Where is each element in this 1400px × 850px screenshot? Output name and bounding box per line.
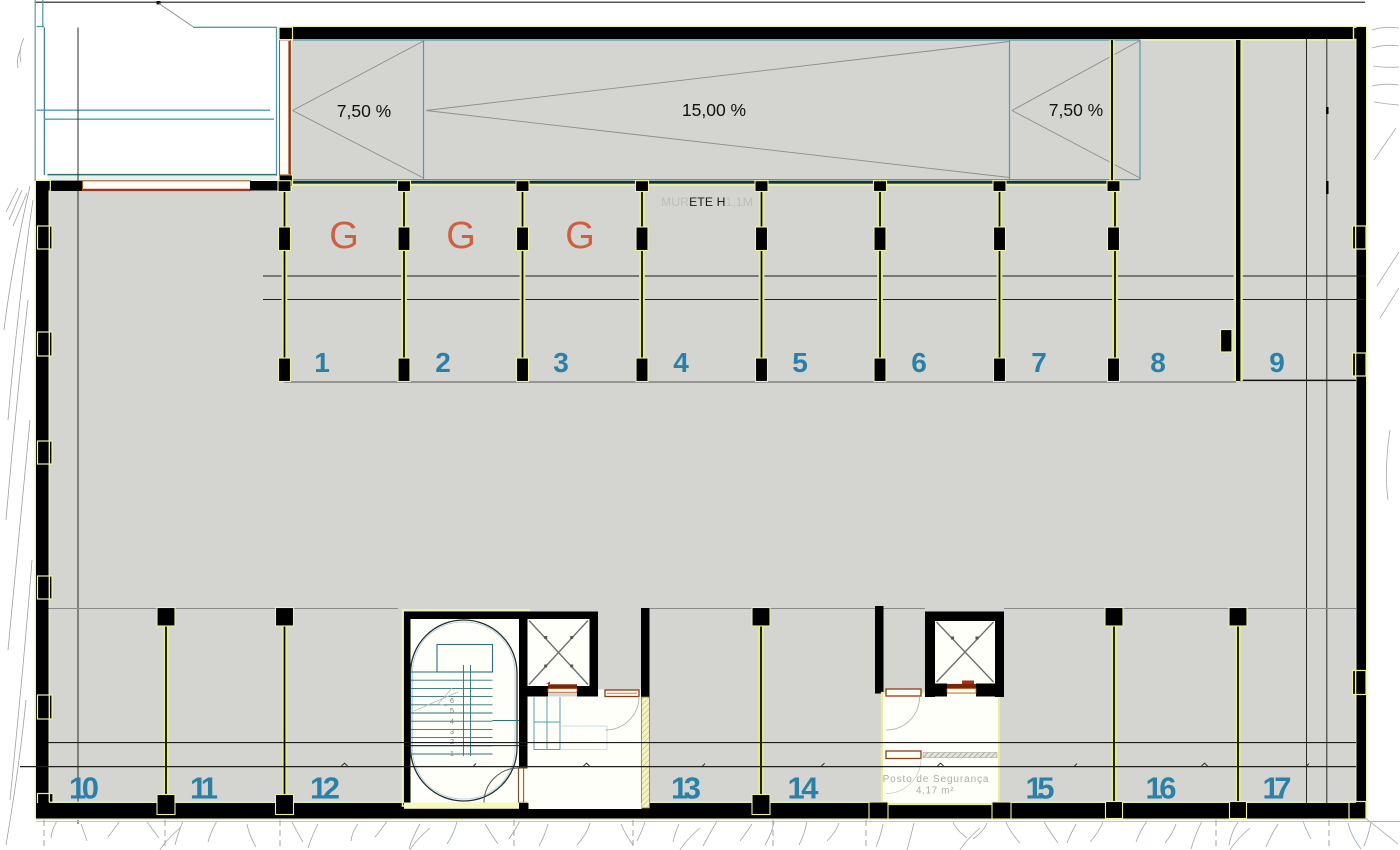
svg-text:9: 9 (1269, 347, 1285, 378)
svg-text:8: 8 (1150, 347, 1166, 378)
svg-text:2: 2 (435, 347, 451, 378)
svg-text:1: 1 (314, 347, 330, 378)
svg-text:12: 12 (310, 771, 340, 806)
svg-text:G: G (446, 215, 476, 257)
svg-text:5: 5 (450, 706, 454, 715)
svg-text:4: 4 (450, 717, 454, 726)
svg-text:G: G (329, 215, 359, 257)
svg-text:3: 3 (553, 347, 569, 378)
svg-text:15,00 %: 15,00 % (682, 100, 746, 120)
svg-text:13: 13 (671, 771, 701, 806)
svg-text:11: 11 (190, 771, 218, 806)
svg-text:G: G (565, 215, 595, 257)
svg-text:15: 15 (1026, 771, 1055, 806)
svg-text:10: 10 (69, 771, 99, 806)
svg-text:MURETE H1,1M: MURETE H1,1M (661, 195, 753, 209)
svg-text:7: 7 (1031, 347, 1047, 378)
svg-text:6: 6 (450, 696, 454, 705)
svg-text:4: 4 (673, 347, 689, 378)
svg-text:5: 5 (792, 347, 808, 378)
svg-text:6: 6 (911, 347, 927, 378)
svg-text:4,17 m²: 4,17 m² (916, 786, 954, 797)
svg-text:7,50 %: 7,50 % (337, 101, 391, 121)
svg-text:Posto de Segurança: Posto de Segurança (883, 774, 990, 785)
svg-text:3: 3 (450, 727, 454, 736)
svg-text:1: 1 (450, 749, 454, 758)
svg-text:17: 17 (1263, 771, 1292, 806)
svg-text:16: 16 (1146, 771, 1177, 806)
svg-text:2: 2 (450, 737, 454, 746)
svg-text:7,50 %: 7,50 % (1049, 100, 1103, 120)
svg-text:14: 14 (788, 771, 820, 806)
